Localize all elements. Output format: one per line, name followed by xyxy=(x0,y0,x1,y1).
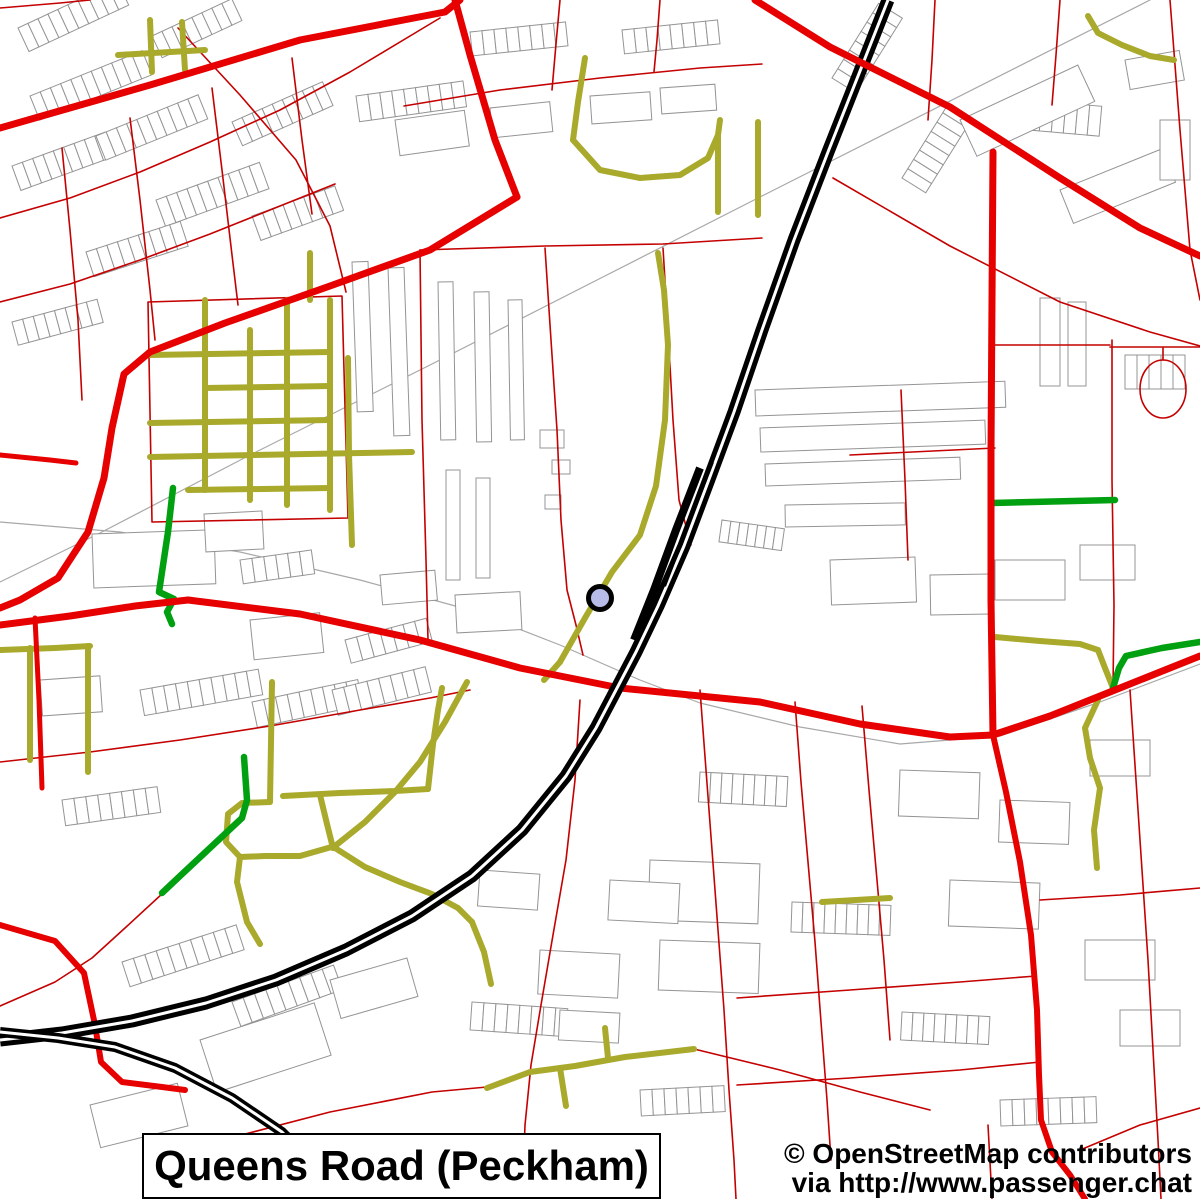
building xyxy=(388,267,410,435)
building xyxy=(664,1088,677,1115)
building xyxy=(760,420,986,452)
building xyxy=(40,676,102,716)
building xyxy=(898,770,980,819)
building xyxy=(731,774,744,805)
building xyxy=(912,1013,924,1042)
path-olive xyxy=(270,682,272,802)
terrace-row xyxy=(62,787,161,826)
path-olive xyxy=(348,358,352,545)
terrace-row xyxy=(719,520,784,551)
path-olive xyxy=(150,20,152,72)
building xyxy=(1012,1099,1025,1125)
building xyxy=(977,1016,989,1045)
building xyxy=(1040,298,1060,386)
path-olive xyxy=(237,856,265,944)
building xyxy=(955,1015,967,1044)
road-major xyxy=(0,455,76,463)
road-minor xyxy=(737,1062,1040,1085)
building xyxy=(330,958,418,1019)
path-olive xyxy=(995,637,1098,650)
terrace-row xyxy=(252,186,344,241)
road-minor xyxy=(0,893,163,1006)
building xyxy=(608,880,680,924)
terrace-row xyxy=(332,667,431,715)
building xyxy=(1087,105,1102,136)
path-olive xyxy=(150,452,412,457)
building xyxy=(755,381,1006,416)
building xyxy=(742,774,755,805)
building xyxy=(753,775,766,806)
building xyxy=(352,261,373,411)
building xyxy=(204,511,264,552)
path-olive xyxy=(1098,650,1113,688)
building xyxy=(395,110,469,155)
terrace-row xyxy=(232,82,333,146)
building xyxy=(1160,120,1190,180)
path-olive xyxy=(150,420,330,423)
building xyxy=(720,773,733,804)
path-olive xyxy=(188,488,330,490)
terrace-row xyxy=(901,1012,990,1045)
building xyxy=(446,470,460,580)
terrace-row xyxy=(122,925,244,987)
path-olive xyxy=(205,386,330,388)
path-olive xyxy=(0,646,90,650)
building xyxy=(785,503,905,527)
path-olive xyxy=(573,120,720,178)
building xyxy=(791,902,803,932)
building xyxy=(477,870,539,910)
path-olive xyxy=(118,50,205,55)
path-olive xyxy=(150,352,330,355)
building xyxy=(455,592,522,633)
road-minor xyxy=(850,448,995,455)
building xyxy=(590,92,652,124)
attribution-line2: via http://www.passenger.chat xyxy=(784,1168,1192,1197)
terrace-row xyxy=(640,1086,725,1116)
road-minor xyxy=(1112,340,1114,688)
road-minor xyxy=(230,1087,487,1138)
map-attribution: © OpenStreetMap contributors via http://… xyxy=(784,1139,1192,1197)
path-olive xyxy=(428,688,442,789)
building xyxy=(966,1015,978,1044)
road-minor xyxy=(420,238,762,250)
building xyxy=(764,775,777,806)
building xyxy=(960,65,1095,156)
road-major xyxy=(0,600,188,625)
terrace-row xyxy=(1125,355,1185,389)
building xyxy=(995,560,1065,600)
building xyxy=(709,773,722,804)
building xyxy=(545,495,561,509)
building xyxy=(930,574,991,615)
terrace-row xyxy=(86,221,188,276)
building xyxy=(698,772,711,803)
building xyxy=(775,776,788,807)
terrace-row xyxy=(698,772,787,807)
building xyxy=(933,1014,945,1043)
building xyxy=(813,903,825,933)
path-olive xyxy=(472,922,491,984)
map-container: Queens Road (Peckham) © OpenStreetMap co… xyxy=(0,0,1200,1199)
path-olive xyxy=(1085,700,1100,868)
building xyxy=(490,102,553,138)
building xyxy=(923,1013,935,1042)
building xyxy=(380,570,437,605)
terrace-row xyxy=(622,20,720,54)
building xyxy=(700,1086,713,1113)
terrace-row xyxy=(140,669,263,715)
map-title: Queens Road (Peckham) xyxy=(154,1142,649,1190)
building xyxy=(830,557,917,605)
building xyxy=(640,1089,653,1116)
railway-line xyxy=(664,462,712,586)
path-olive xyxy=(320,795,333,848)
road-minor xyxy=(833,178,1200,346)
building xyxy=(1137,355,1149,389)
building xyxy=(1090,740,1150,776)
road-minor xyxy=(62,148,82,400)
building xyxy=(508,300,524,440)
building xyxy=(857,904,869,934)
path-olive xyxy=(560,1068,566,1106)
railway-line xyxy=(634,468,700,640)
building xyxy=(868,905,880,935)
map-canvas xyxy=(0,0,1200,1199)
path-olive xyxy=(822,898,890,902)
road-minor xyxy=(1040,888,1200,900)
station-marker xyxy=(589,587,612,610)
building xyxy=(552,460,570,474)
road-major xyxy=(35,618,42,788)
building xyxy=(706,20,720,45)
building xyxy=(1000,1100,1013,1126)
building xyxy=(1024,1099,1037,1125)
building xyxy=(1068,302,1086,386)
building xyxy=(660,84,717,114)
terrace-row xyxy=(12,299,103,345)
path-olive xyxy=(605,1028,608,1058)
building xyxy=(712,1086,725,1113)
building xyxy=(688,1087,701,1114)
building xyxy=(1173,355,1185,389)
terrace-row xyxy=(470,1002,568,1037)
terrace-row xyxy=(470,22,568,56)
path-olive xyxy=(573,58,585,140)
building xyxy=(676,1087,689,1114)
terrace-row xyxy=(1000,1097,1097,1126)
building xyxy=(652,1089,665,1116)
building xyxy=(92,530,216,588)
building xyxy=(540,430,564,448)
building xyxy=(538,950,620,998)
building xyxy=(438,282,456,440)
road-minor xyxy=(292,58,312,214)
path-green xyxy=(992,500,1115,503)
map-title-box: Queens Road (Peckham) xyxy=(142,1133,661,1199)
building xyxy=(474,292,492,442)
building xyxy=(1072,1097,1085,1123)
road-minor xyxy=(545,248,583,655)
building xyxy=(1084,1097,1097,1123)
terrace-row xyxy=(18,0,129,52)
road-major-bridge xyxy=(755,0,1200,256)
road-minor xyxy=(130,118,155,340)
road-minor xyxy=(862,706,890,1040)
building xyxy=(1120,1010,1180,1046)
building xyxy=(1080,545,1135,580)
building xyxy=(1085,940,1155,980)
road-major xyxy=(991,152,993,735)
building xyxy=(824,903,836,933)
building xyxy=(944,1014,956,1043)
building xyxy=(658,940,760,993)
path-olive xyxy=(487,1049,694,1088)
road-major xyxy=(188,600,1200,737)
building xyxy=(1125,355,1137,389)
attribution-line1: © OpenStreetMap contributors xyxy=(784,1139,1192,1168)
building xyxy=(476,478,490,578)
terrace-row xyxy=(30,51,152,120)
building xyxy=(558,1010,619,1043)
building xyxy=(835,904,847,934)
path-olive xyxy=(283,789,428,796)
building xyxy=(901,1012,913,1041)
path-olive xyxy=(182,22,185,70)
building xyxy=(1060,1097,1073,1123)
building xyxy=(1048,1098,1061,1124)
building xyxy=(846,904,858,934)
path-green xyxy=(162,757,247,893)
terrace-row xyxy=(791,902,891,935)
building xyxy=(765,457,961,486)
